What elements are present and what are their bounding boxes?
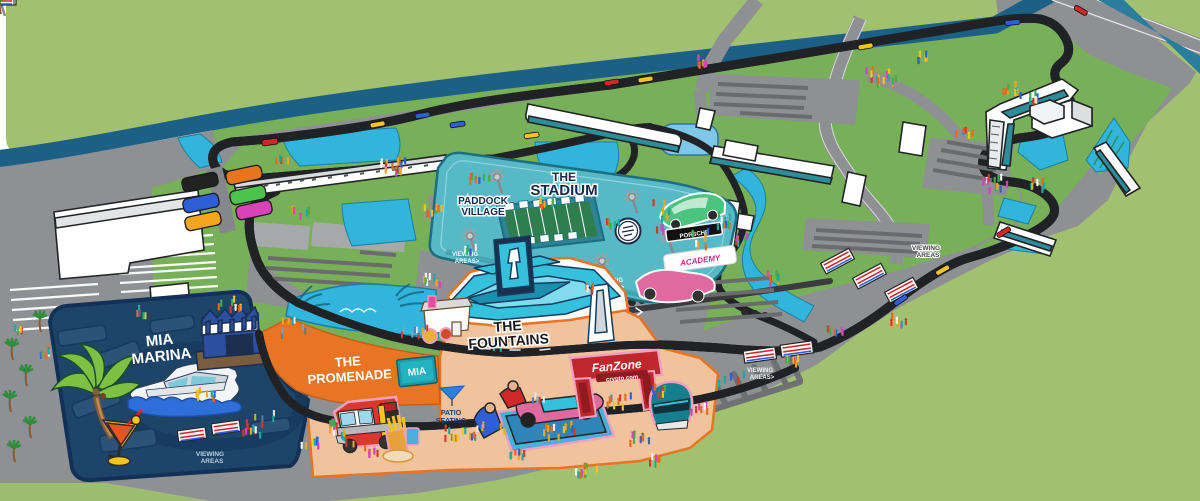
svg-text:VILLAGE: VILLAGE <box>461 207 505 218</box>
svg-text:VIEWING: VIEWING <box>452 252 478 258</box>
svg-text:AREAS: AREAS <box>917 252 940 259</box>
svg-text:AREAS: AREAS <box>201 458 224 465</box>
svg-text:STADIUM: STADIUM <box>530 182 597 199</box>
svg-text:PATIO: PATIO <box>441 410 462 417</box>
svg-text:PADDOCK: PADDOCK <box>458 196 509 207</box>
svg-text:SEATING: SEATING <box>436 418 467 425</box>
svg-text:AREAS>: AREAS> <box>455 259 480 265</box>
svg-text:THE: THE <box>334 353 361 370</box>
svg-text:VIEWING: VIEWING <box>912 245 940 252</box>
svg-text:MIA: MIA <box>407 366 426 379</box>
svg-text:VIEWING: VIEWING <box>747 368 773 374</box>
svg-text:AREAS>: AREAS> <box>750 375 775 381</box>
svg-text:VIEWING: VIEWING <box>196 451 224 458</box>
